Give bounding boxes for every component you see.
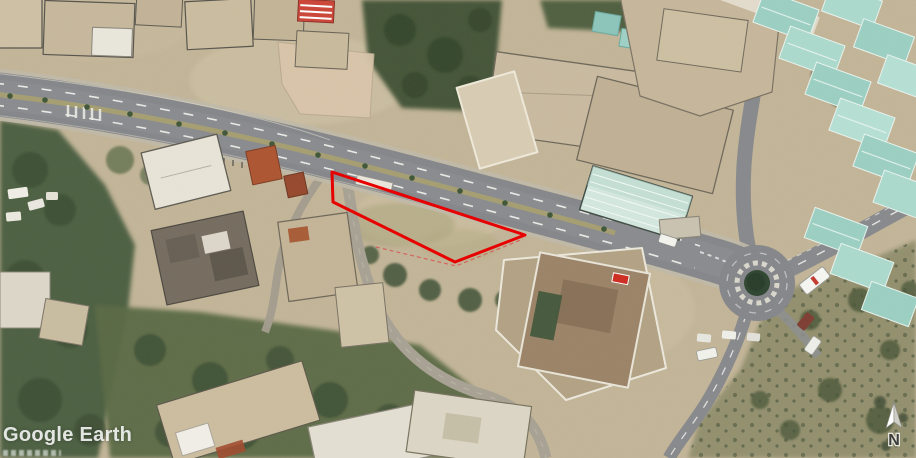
north-arrow-icon — [886, 402, 894, 428]
google-earth-viewport[interactable]: Google Earth N — [0, 0, 916, 458]
north-label: N — [888, 432, 900, 449]
copyright-text-blurred — [3, 450, 61, 456]
north-indicator: N — [878, 398, 914, 452]
photo-grain — [0, 0, 916, 458]
google-earth-watermark: Google Earth — [3, 424, 132, 447]
satellite-imagery — [0, 0, 916, 458]
